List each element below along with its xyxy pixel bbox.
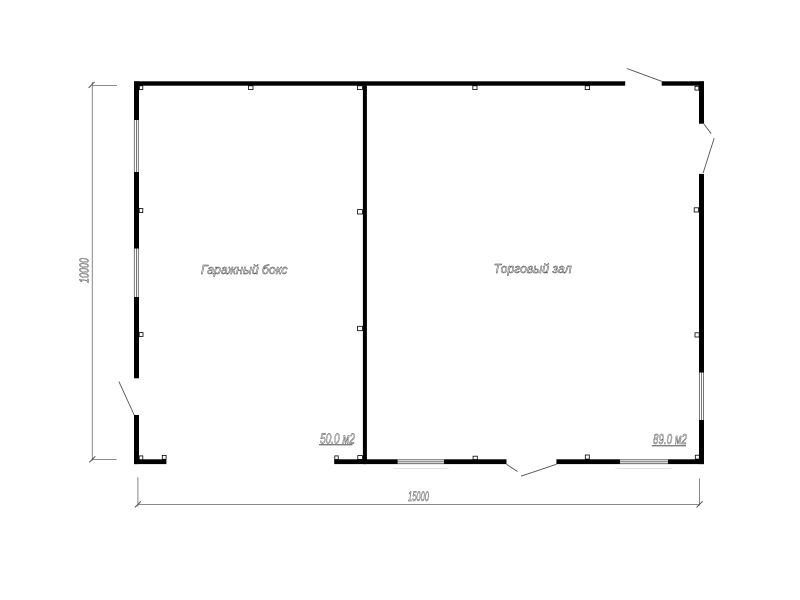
svg-text:10000: 10000 — [77, 257, 92, 283]
svg-text:Торговый зал: Торговый зал — [494, 261, 573, 276]
svg-text:Гаражный бокс: Гаражный бокс — [201, 262, 288, 277]
svg-text:15000: 15000 — [408, 489, 429, 504]
